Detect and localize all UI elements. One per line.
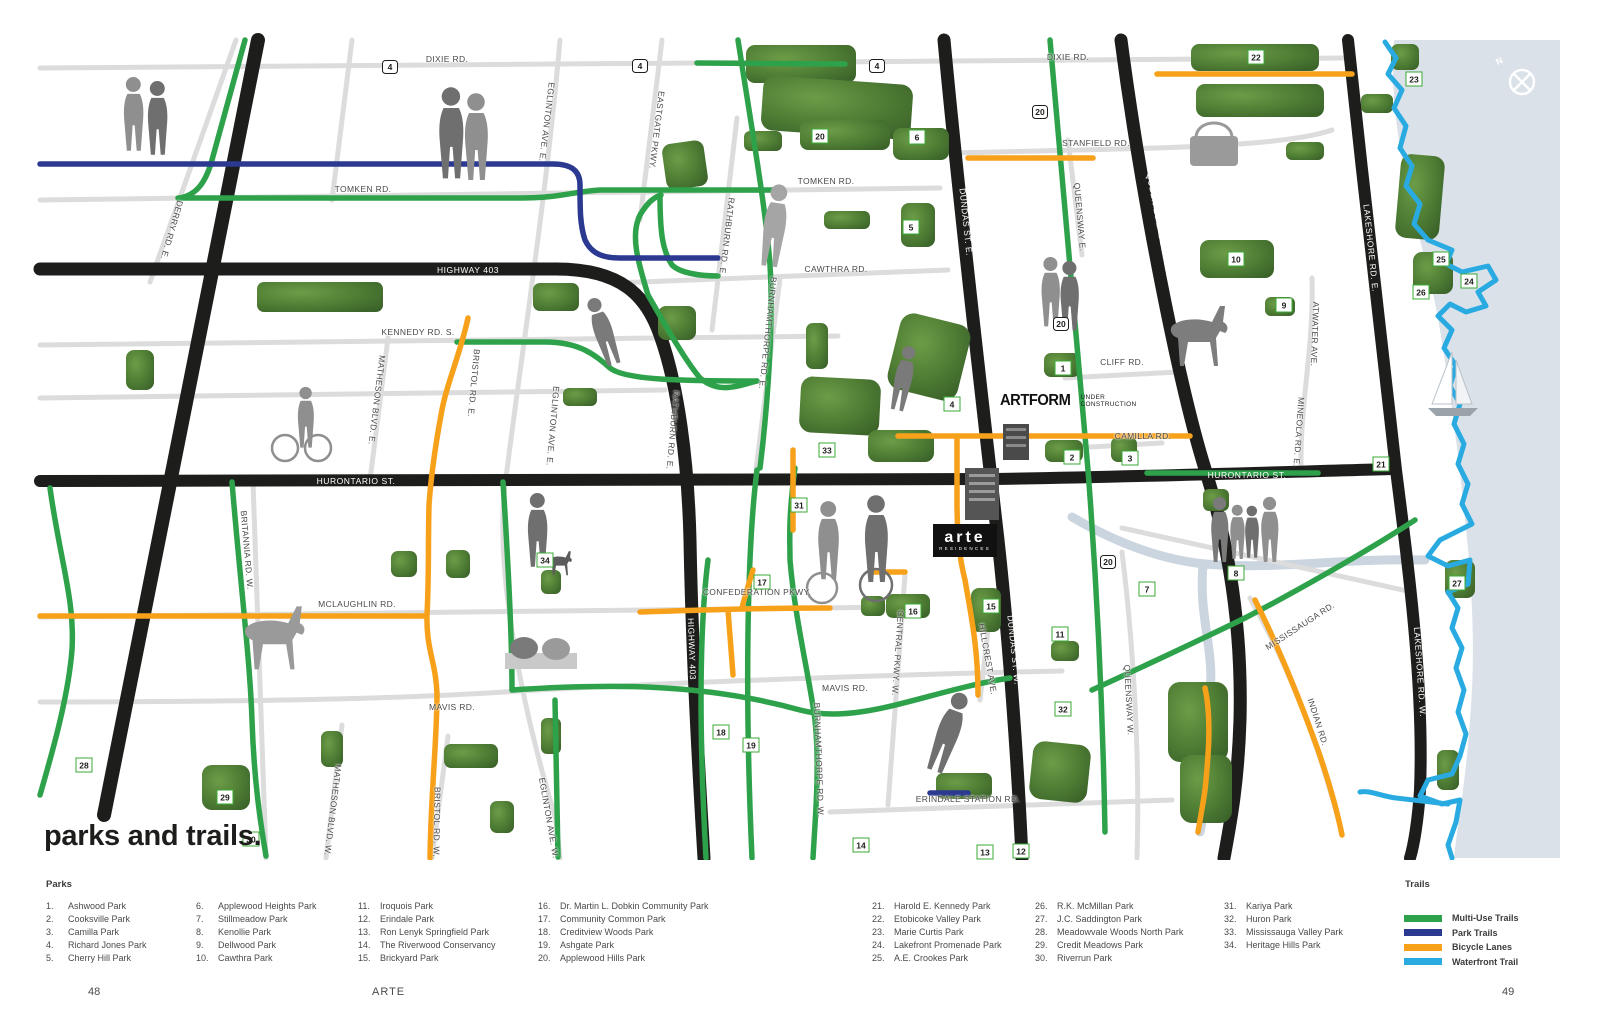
park-list-item-1: 1.Ashwood Park [46,899,147,912]
park-marker-1: 1 [1055,361,1072,376]
park-list-item-25: 25.A.E. Crookes Park [872,952,1002,965]
park-marker-18: 18 [713,725,730,740]
artform-label: ARTFORM UNDER CONSTRUCTION [1000,392,1142,410]
park-list-item-4: 4.Richard Jones Park [46,939,147,952]
park-name: Brickyard Park [380,953,439,963]
park-number: 14. [358,940,380,950]
route-shield-20: 20 [1032,105,1048,119]
route-shield-20: 20 [1100,555,1116,569]
arte-logo-sub: RESIDENCES [939,546,991,551]
trail-color-swatch [1404,958,1442,965]
cyclists-pair-image [807,495,892,603]
park-name: Creditview Woods Park [560,927,653,937]
park-list-item-27: 27.J.C. Saddington Park [1035,912,1183,925]
park-name: Richard Jones Park [68,940,147,950]
park-list-item-24: 24.Lakefront Promenade Park [872,939,1002,952]
park-marker-27: 27 [1449,576,1466,591]
park-marker-19: 19 [743,738,760,753]
park-list-item-18: 18.Creditview Woods Park [538,925,709,938]
park-marker-20: 20 [812,129,829,144]
road-label-cliff-rd-: CLIFF RD. [1100,357,1144,367]
trail-legend-item-multi-use-trails: Multi-Use Trails [1404,913,1519,923]
park-marker-13: 13 [977,845,994,860]
artform-status: UNDER CONSTRUCTION [1080,394,1142,408]
page-number-left: 48 [88,986,100,998]
park-name: J.C. Saddington Park [1057,914,1142,924]
park-marker-3: 3 [1122,451,1139,466]
park-marker-21: 21 [1373,457,1390,472]
road-label-mclaughlin-rd-: MCLAUGHLIN RD. [318,599,396,609]
road-label-tomken-rd-: TOMKEN RD. [798,176,855,186]
park-marker-23: 23 [1406,72,1423,87]
park-marker-33: 33 [819,443,836,458]
road-label-hurontario-st-: HURONTARIO ST. [317,476,396,486]
park-number: 20. [538,953,560,963]
picnic-basket-image [1190,123,1238,166]
park-number: 11. [358,901,380,911]
park-marker-8: 8 [1228,566,1245,581]
park-marker-2: 2 [1064,450,1081,465]
road-label-highway-403: HIGHWAY 403 [437,265,499,275]
park-marker-10: 10 [1228,252,1245,267]
route-shield-20: 20 [1053,317,1069,331]
parks-legend-column: 1.Ashwood Park2.Cooksville Park3.Camilla… [46,899,147,965]
parks-legend-column: 16.Dr. Martin L. Dobkin Community Park17… [538,899,709,965]
park-number: 31. [1224,901,1246,911]
park-number: 1. [46,901,68,911]
park-name: Mississauga Valley Park [1246,927,1343,937]
park-marker-34: 34 [537,553,554,568]
arte-logo-text: arte [944,530,985,545]
road-label-dixie-rd-: DIXIE RD. [426,54,468,64]
park-marker-24: 24 [1461,274,1478,289]
park-list-item-19: 19.Ashgate Park [538,939,709,952]
park-list-item-2: 2.Cooksville Park [46,912,147,925]
park-marker-11: 11 [1052,627,1069,642]
park-number: 17. [538,914,560,924]
parks-trails-map: DIXIE RD.DIXIE RD.TOMKEN RD.TOMKEN RD.ST… [0,0,1600,860]
park-list-item-31: 31.Kariya Park [1224,899,1343,912]
park-marker-26: 26 [1413,285,1430,300]
park-marker-17: 17 [754,575,771,590]
park-marker-14: 14 [853,838,870,853]
park-list-item-15: 15.Brickyard Park [358,952,496,965]
road-label-mavis-rd-: MAVIS RD. [822,683,868,693]
park-name: Dellwood Park [218,940,276,950]
park-list-item-7: 7.Stillmeadow Park [196,912,317,925]
park-name: Applewood Hills Park [560,953,645,963]
park-name: Stillmeadow Park [218,914,288,924]
park-number: 28. [1035,927,1057,937]
compass-north-label: N [1494,55,1504,67]
road-label-bristol-rd-w-: BRISTOL RD. W. [431,787,442,857]
park-name: Harold E. Kennedy Park [894,901,991,911]
map-graphics [0,0,1600,860]
route-shield-4: 4 [869,59,885,73]
picnic-couple-image [505,637,577,669]
park-list-item-8: 8.Kenollie Park [196,925,317,938]
park-list-item-26: 26.R.K. McMillan Park [1035,899,1183,912]
park-name: Kenollie Park [218,927,271,937]
park-number: 10. [196,953,218,963]
park-name: Cherry Hill Park [68,953,131,963]
footer-brand: ARTE [372,986,405,998]
park-number: 7. [196,914,218,924]
trail-color-swatch [1404,915,1442,922]
road-label-hurontario-st-: HURONTARIO ST. [1208,470,1287,480]
park-number: 26. [1035,901,1057,911]
parks-legend-column: 11.Iroquois Park12.Erindale Park13.Ron L… [358,899,496,965]
park-name: Applewood Heights Park [218,901,317,911]
park-list-item-5: 5.Cherry Hill Park [46,952,147,965]
road-label-kennedy-rd-s-: KENNEDY RD. S. [381,327,454,337]
road-label-mavis-rd-: MAVIS RD. [429,702,475,712]
park-name: Kariya Park [1246,901,1293,911]
hiker-image [924,690,973,775]
park-marker-4: 4 [944,397,961,412]
park-name: Erindale Park [380,914,434,924]
park-number: 8. [196,927,218,937]
park-name: Ashgate Park [560,940,614,950]
park-number: 4. [46,940,68,950]
park-number: 29. [1035,940,1057,950]
park-list-item-22: 22.Etobicoke Valley Park [872,912,1002,925]
park-number: 23. [872,927,894,937]
route-shield-4: 4 [632,59,648,73]
park-list-item-20: 20.Applewood Hills Park [538,952,709,965]
park-list-item-21: 21.Harold E. Kennedy Park [872,899,1002,912]
trail-legend-item-bicycle-lanes: Bicycle Lanes [1404,942,1512,952]
soccer-player-image [584,295,623,367]
park-list-item-16: 16.Dr. Martin L. Dobkin Community Park [538,899,709,912]
park-marker-28: 28 [76,758,93,773]
park-marker-5: 5 [903,220,920,235]
park-name: Camilla Park [68,927,119,937]
park-number: 24. [872,940,894,950]
road-label-dixie-rd-: DIXIE RD. [1047,52,1089,62]
page-title: parks and trails. [44,820,261,853]
road-label-erindale-station-rd-: ERINDALE STATION RD. [916,794,1020,804]
arte-residences-logo: arte RESIDENCES [933,524,997,557]
parks-legend-column: 26.R.K. McMillan Park27.J.C. Saddington … [1035,899,1183,965]
park-name: Dr. Martin L. Dobkin Community Park [560,901,709,911]
park-name: The Riverwood Conservancy [380,940,496,950]
compass: N [1494,56,1540,102]
cyclist-woman-image [272,387,331,461]
park-list-item-3: 3.Camilla Park [46,925,147,938]
road-label-highway-403: HIGHWAY 403 [686,618,698,680]
park-list-item-10: 10.Cawthra Park [196,952,317,965]
park-number: 18. [538,927,560,937]
park-marker-16: 16 [905,604,922,619]
park-number: 34. [1224,940,1246,950]
park-number: 6. [196,901,218,911]
park-number: 2. [46,914,68,924]
park-list-item-11: 11.Iroquois Park [358,899,496,912]
park-list-item-23: 23.Marie Curtis Park [872,925,1002,938]
trail-label: Bicycle Lanes [1452,942,1512,952]
park-number: 21. [872,901,894,911]
park-name: Meadowvale Woods North Park [1057,927,1183,937]
page-number-right: 49 [1502,986,1514,998]
park-number: 15. [358,953,380,963]
parks-legend-column: 21.Harold E. Kennedy Park22.Etobicoke Va… [872,899,1002,965]
park-number: 22. [872,914,894,924]
park-name: Marie Curtis Park [894,927,964,937]
park-list-item-33: 33.Mississauga Valley Park [1224,925,1343,938]
park-list-item-28: 28.Meadowvale Woods North Park [1035,925,1183,938]
park-marker-29: 29 [217,790,234,805]
park-number: 33. [1224,927,1246,937]
road-label-cawthra-rd-: CAWTHRA RD. [804,264,867,274]
route-shield-4: 4 [382,60,398,74]
park-name: Cooksville Park [68,914,130,924]
park-number: 16. [538,901,560,911]
walkers-pair-image [124,77,167,155]
park-name: Lakefront Promenade Park [894,940,1002,950]
park-name: Huron Park [1246,914,1292,924]
park-list-item-9: 9.Dellwood Park [196,939,317,952]
park-number: 30. [1035,953,1057,963]
park-name: Community Common Park [560,914,666,924]
park-marker-32: 32 [1055,702,1072,717]
park-number: 25. [872,953,894,963]
park-name: Cawthra Park [218,953,273,963]
park-marker-6: 6 [909,130,926,145]
artform-logo: ARTFORM [1000,392,1070,410]
park-list-item-12: 12.Erindale Park [358,912,496,925]
park-name: Etobicoke Valley Park [894,914,981,924]
park-list-item-29: 29.Credit Meadows Park [1035,939,1183,952]
trail-legend-item-waterfront-trail: Waterfront Trail [1404,957,1518,967]
trail-label: Park Trails [1452,928,1498,938]
park-number: 27. [1035,914,1057,924]
park-marker-31: 31 [791,498,808,513]
park-marker-15: 15 [983,599,1000,614]
park-number: 32. [1224,914,1246,924]
park-list-item-14: 14.The Riverwood Conservancy [358,939,496,952]
trail-legend-item-park-trails: Park Trails [1404,928,1498,938]
park-list-item-6: 6.Applewood Heights Park [196,899,317,912]
park-name: A.E. Crookes Park [894,953,968,963]
park-name: Ron Lenyk Springfield Park [380,927,489,937]
park-number: 13. [358,927,380,937]
road-label-stanfield-rd-: STANFIELD RD. [1062,138,1130,148]
park-number: 5. [46,953,68,963]
park-marker-25: 25 [1433,252,1450,267]
park-list-item-13: 13.Ron Lenyk Springfield Park [358,925,496,938]
park-list-item-34: 34.Heritage Hills Park [1224,939,1343,952]
brochure-page: DIXIE RD.DIXIE RD.TOMKEN RD.TOMKEN RD.ST… [0,0,1600,1018]
trail-label: Multi-Use Trails [1452,913,1519,923]
parks-legend-column: 6.Applewood Heights Park7.Stillmeadow Pa… [196,899,317,965]
park-name: Iroquois Park [380,901,433,911]
trail-color-swatch [1404,929,1442,936]
trail-color-swatch [1404,944,1442,951]
road-label-camilla-rd-: CAMILLA RD. [1115,431,1172,441]
parks-legend-title: Parks [46,879,72,890]
park-name: Riverrun Park [1057,953,1112,963]
park-list-item-17: 17.Community Common Park [538,912,709,925]
park-list-item-30: 30.Riverrun Park [1035,952,1183,965]
park-name: Ashwood Park [68,901,126,911]
park-marker-22: 22 [1248,50,1265,65]
park-list-item-32: 32.Huron Park [1224,912,1343,925]
park-marker-12: 12 [1013,844,1030,859]
park-name: R.K. McMillan Park [1057,901,1134,911]
park-number: 9. [196,940,218,950]
park-marker-7: 7 [1139,582,1156,597]
park-number: 19. [538,940,560,950]
park-name: Credit Meadows Park [1057,940,1143,950]
park-marker-9: 9 [1276,298,1293,313]
trails-legend-title: Trails [1405,879,1430,890]
trail-label: Waterfront Trail [1452,957,1518,967]
road-label-tomken-rd-: TOMKEN RD. [335,184,392,194]
park-number: 12. [358,914,380,924]
park-name: Heritage Hills Park [1246,940,1321,950]
park-number: 3. [46,927,68,937]
parks-legend-column: 31.Kariya Park32.Huron Park33.Mississaug… [1224,899,1343,952]
